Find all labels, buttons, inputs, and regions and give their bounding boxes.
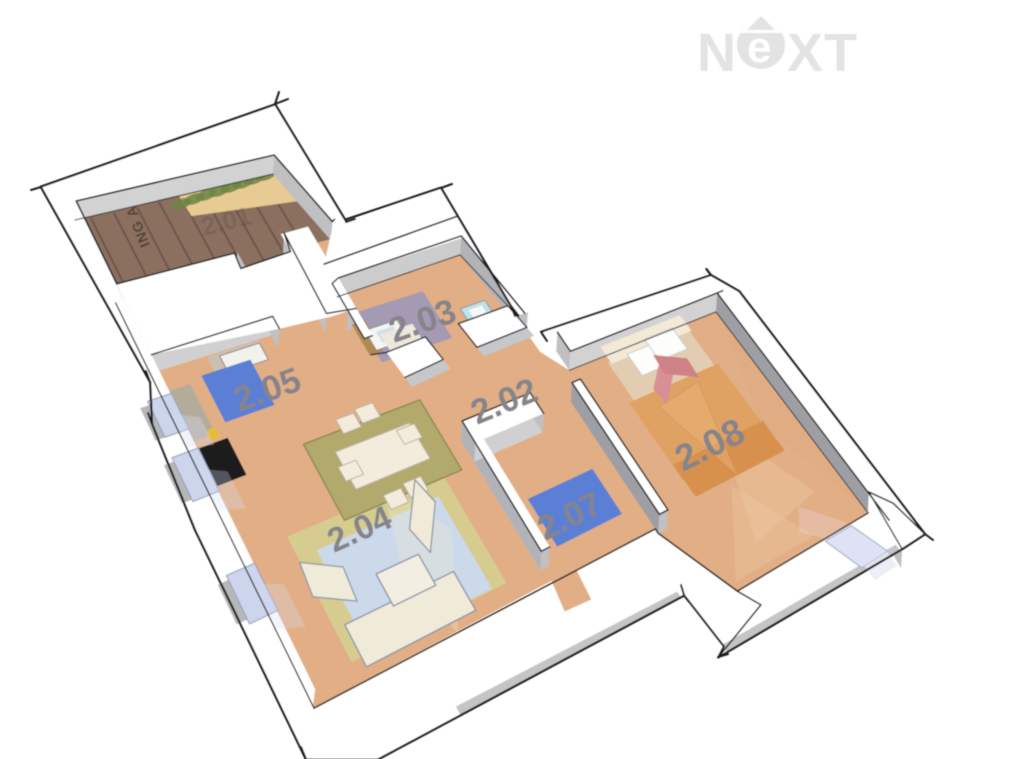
svg-text:N: N (697, 23, 737, 83)
svg-text:e: e (747, 23, 771, 72)
svg-text:XT: XT (787, 23, 858, 83)
